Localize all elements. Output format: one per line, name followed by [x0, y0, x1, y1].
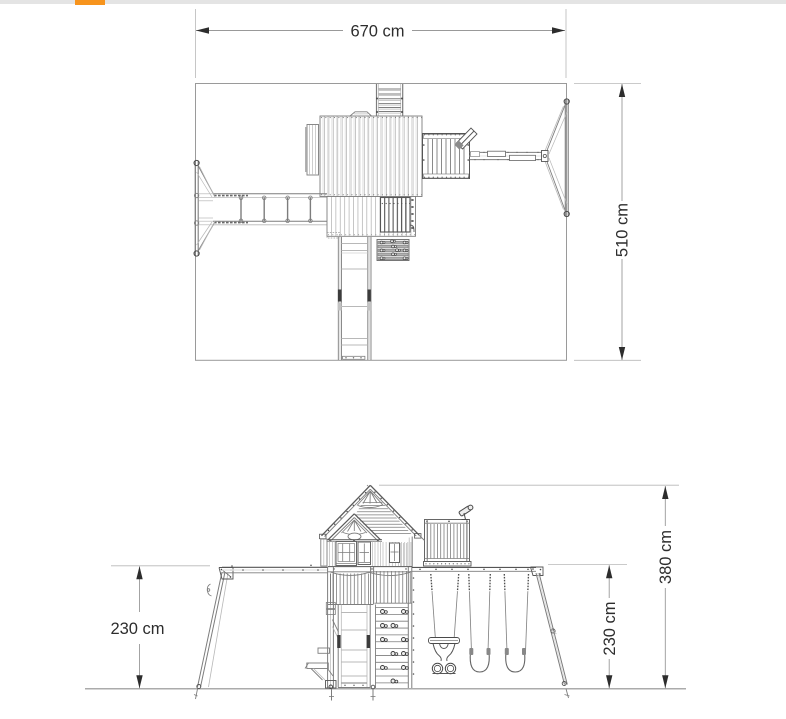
- svg-text:230 cm: 230 cm: [601, 601, 619, 655]
- svg-text:230 cm: 230 cm: [110, 620, 164, 638]
- svg-text:510 cm: 510 cm: [614, 203, 632, 257]
- svg-text:380 cm: 380 cm: [657, 530, 675, 584]
- svg-text:670 cm: 670 cm: [350, 23, 404, 41]
